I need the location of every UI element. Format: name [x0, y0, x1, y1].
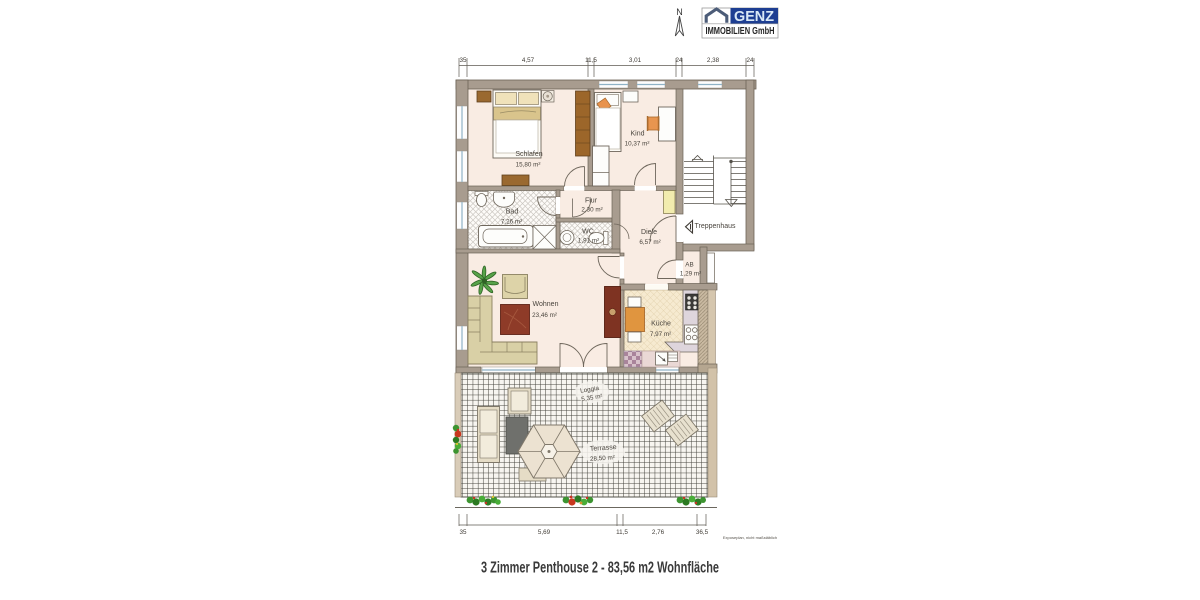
svg-text:Küche: Küche: [651, 321, 671, 328]
svg-text:23,46 m²: 23,46 m²: [532, 312, 557, 319]
svg-text:2,38: 2,38: [707, 57, 720, 64]
svg-text:3 Zimmer Penthouse 2 - 83,56 m: 3 Zimmer Penthouse 2 - 83,56 m2 Wohnfläc…: [481, 560, 719, 577]
svg-text:IMMOBILIEN GmbH: IMMOBILIEN GmbH: [706, 25, 775, 37]
svg-text:1,29 m²: 1,29 m²: [680, 271, 701, 278]
svg-text:AB: AB: [685, 262, 693, 269]
svg-text:Treppenhaus: Treppenhaus: [695, 223, 736, 230]
svg-text:Exposeplan, nicht maßstäblich: Exposeplan, nicht maßstäblich: [723, 535, 777, 540]
svg-text:2,30 m²: 2,30 m²: [581, 207, 602, 214]
svg-text:4,57: 4,57: [522, 57, 535, 64]
svg-text:N: N: [676, 7, 683, 17]
svg-text:35: 35: [459, 529, 467, 536]
svg-text:Flur: Flur: [585, 198, 598, 205]
svg-text:11,5: 11,5: [616, 529, 628, 536]
svg-text:2,76: 2,76: [652, 529, 665, 536]
svg-text:24: 24: [675, 57, 683, 64]
svg-text:3,01: 3,01: [629, 57, 642, 64]
svg-text:1,91 m²: 1,91 m²: [578, 238, 599, 245]
svg-text:Kind: Kind: [630, 131, 644, 138]
svg-text:Wohnen: Wohnen: [533, 301, 559, 308]
svg-text:5,69: 5,69: [538, 529, 551, 536]
svg-text:Diele: Diele: [641, 229, 657, 236]
svg-text:Bad: Bad: [506, 209, 519, 216]
svg-text:7,26 m²: 7,26 m²: [501, 219, 522, 226]
svg-text:15,80 m²: 15,80 m²: [516, 162, 541, 169]
svg-text:6,57 m²: 6,57 m²: [639, 239, 660, 246]
svg-text:35: 35: [459, 57, 467, 64]
svg-text:24: 24: [746, 57, 754, 64]
svg-text:11,5: 11,5: [585, 57, 597, 64]
svg-text:WC: WC: [582, 229, 594, 236]
svg-text:36,5: 36,5: [696, 529, 709, 536]
svg-text:7,97 m²: 7,97 m²: [650, 331, 671, 338]
svg-text:10,37 m²: 10,37 m²: [625, 141, 650, 148]
svg-text:Schlafen: Schlafen: [515, 151, 542, 158]
svg-text:GENZ: GENZ: [734, 9, 774, 25]
